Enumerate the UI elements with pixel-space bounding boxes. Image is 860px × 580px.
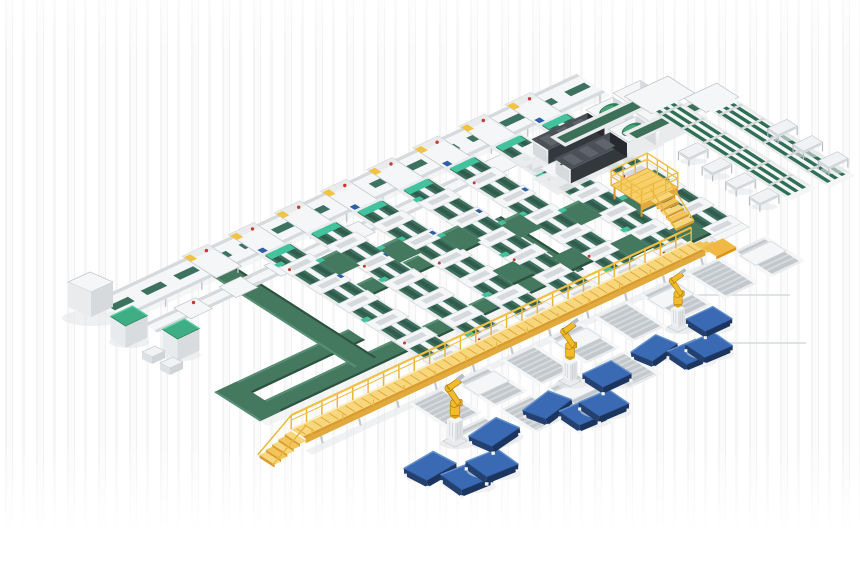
side-bench [679, 143, 708, 167]
outfeed-roller [732, 236, 805, 277]
side-bench [702, 158, 731, 182]
factory-line-render [0, 0, 860, 580]
side-bench [750, 188, 779, 212]
side-bench [726, 173, 755, 197]
outfeed-roller [686, 258, 759, 299]
render-canvas [0, 0, 860, 580]
